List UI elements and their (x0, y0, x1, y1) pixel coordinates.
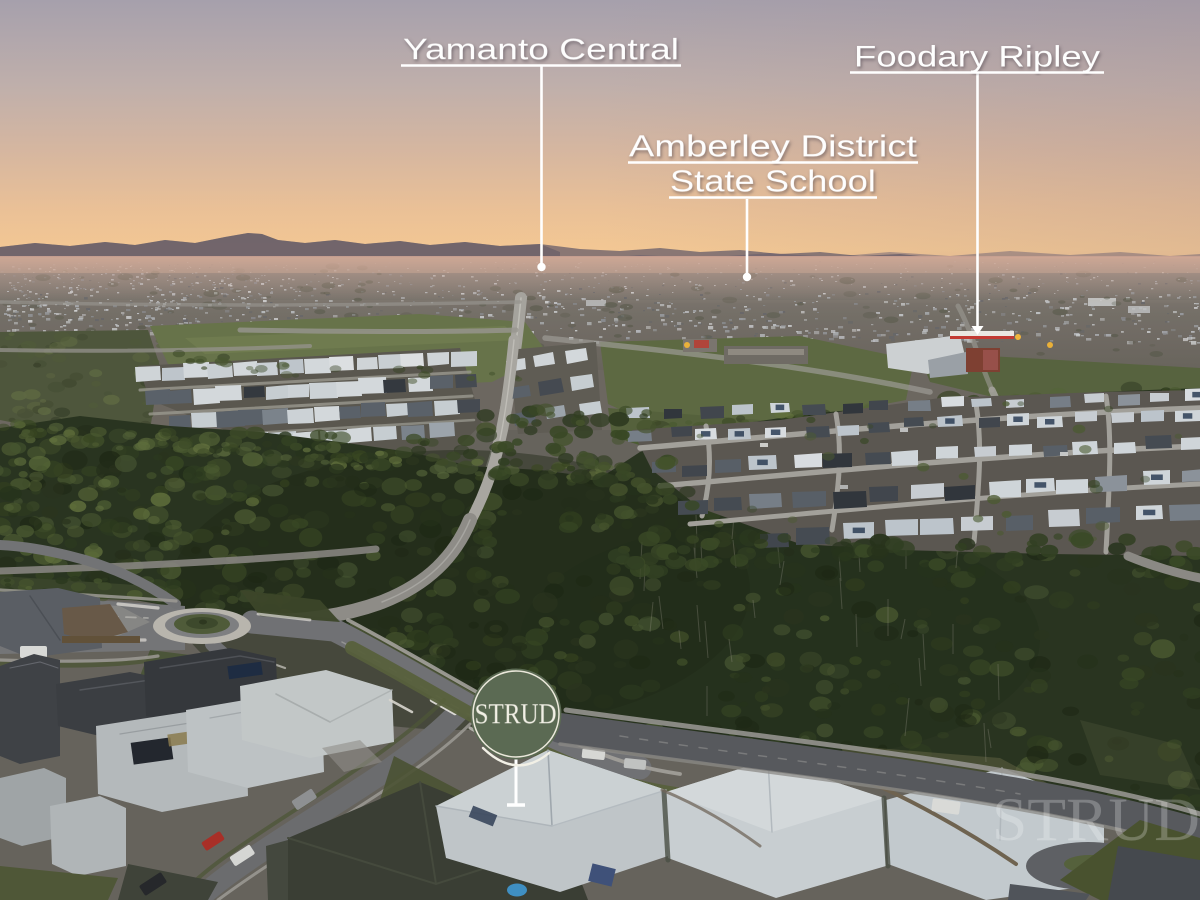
svg-text:Amberley District: Amberley District (629, 128, 917, 163)
svg-text:State School: State School (670, 163, 876, 198)
svg-text:Yamanto Central: Yamanto Central (403, 33, 679, 66)
svg-text:STRUD: STRUD (475, 698, 557, 730)
svg-text:STRUD: STRUD (992, 787, 1200, 854)
svg-text:Foodary Ripley: Foodary Ripley (854, 40, 1100, 73)
